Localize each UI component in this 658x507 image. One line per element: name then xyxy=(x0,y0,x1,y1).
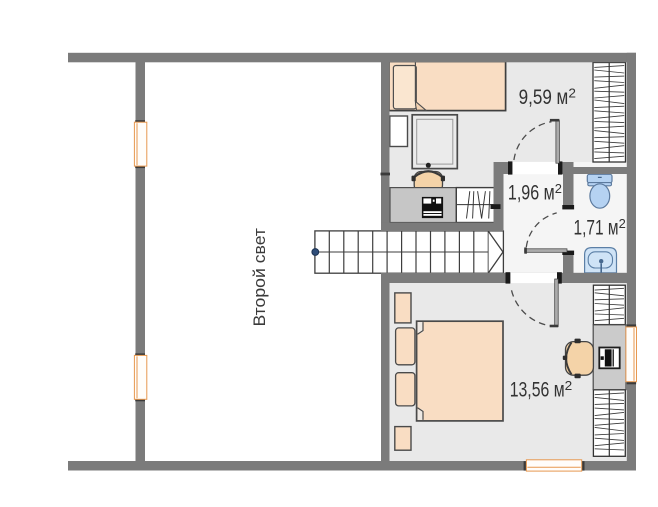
svg-text:13,56 м: 13,56 м xyxy=(510,378,565,401)
svg-text:2: 2 xyxy=(565,378,573,393)
svg-text:1,71 м: 1,71 м xyxy=(574,217,619,240)
svg-text:Второй свет: Второй свет xyxy=(251,228,269,327)
svg-text:2: 2 xyxy=(619,216,626,231)
svg-text:2: 2 xyxy=(568,85,576,100)
svg-text:2: 2 xyxy=(555,181,562,196)
svg-text:1,96 м: 1,96 м xyxy=(508,182,555,205)
svg-text:9,59 м: 9,59 м xyxy=(519,86,569,109)
